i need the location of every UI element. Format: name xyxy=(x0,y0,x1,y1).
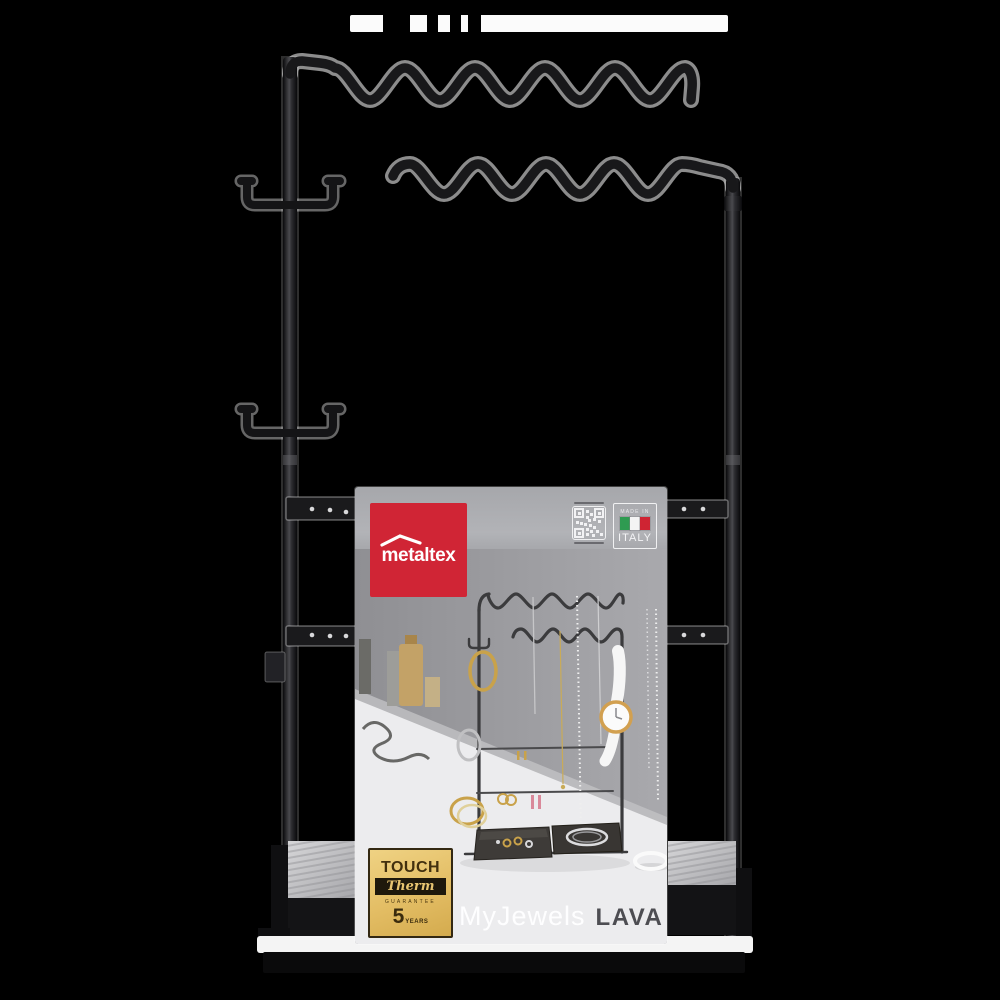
pole-clip xyxy=(265,652,285,682)
photo-bottle-gray xyxy=(387,651,400,706)
felt-texture-right xyxy=(668,841,736,889)
qr-frame xyxy=(572,506,606,540)
packaging-card: metaltex xyxy=(355,487,667,944)
right-pole-joint xyxy=(724,196,742,211)
touch-therm-badge: TOUCH Therm GUARANTEE 5 YEARS xyxy=(368,848,453,938)
felt-texture-left xyxy=(288,841,356,903)
mounting-bar-right-lower xyxy=(662,626,728,644)
right-pole xyxy=(726,178,740,940)
mounting-bar-left-upper xyxy=(286,497,358,520)
qr-microtext-bottom xyxy=(574,542,604,544)
qr-code-icon xyxy=(574,508,604,538)
qr-badge xyxy=(568,502,610,544)
italy-flag-icon xyxy=(620,517,650,530)
photo-bottle-dark xyxy=(359,639,371,694)
guarantee-number: 5 xyxy=(393,906,405,927)
therm-label: Therm xyxy=(375,878,446,895)
mounting-bar-right-upper xyxy=(662,500,728,518)
brand-logo: metaltex xyxy=(370,503,467,597)
cutout-artifact-band xyxy=(350,15,728,32)
base-shadow xyxy=(263,952,745,973)
photo-bottle-gold xyxy=(399,644,423,706)
product-name-secondary: LAVA xyxy=(596,904,664,932)
photo-bottle-small xyxy=(425,677,440,707)
photo-tray-right xyxy=(552,823,622,854)
qr-microtext-top xyxy=(574,502,604,504)
left-pole-joint xyxy=(283,455,297,465)
guarantee-years: 5 YEARS xyxy=(393,906,429,927)
base-front-left xyxy=(288,898,356,940)
right-pole-joint-2 xyxy=(726,455,740,465)
made-in-italy-badge: MADE IN ITALY xyxy=(613,503,657,549)
made-in-label: MADE IN xyxy=(620,509,649,515)
base-front-right xyxy=(668,885,736,935)
base-leg-left xyxy=(271,845,289,940)
product-name-primary: MyJewels xyxy=(459,901,586,932)
touch-label: TOUCH xyxy=(381,859,440,877)
brand-name: metaltex xyxy=(382,545,456,567)
product-name: MyJewels LAVA xyxy=(459,901,663,932)
guarantee-years-label: YEARS xyxy=(405,919,428,925)
italy-label: ITALY xyxy=(618,532,652,544)
product-image-canvas: metaltex xyxy=(0,0,1000,1000)
base-leg-right xyxy=(736,868,752,940)
